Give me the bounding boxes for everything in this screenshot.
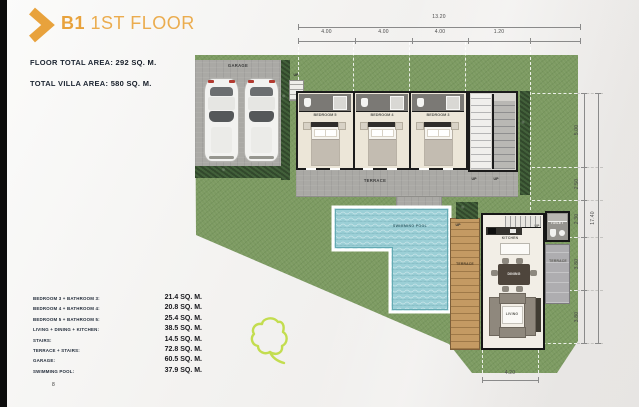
dim-tick bbox=[482, 377, 483, 383]
window bbox=[419, 168, 429, 170]
window bbox=[330, 168, 340, 170]
dim-tick bbox=[581, 290, 587, 291]
bathroom4 bbox=[356, 94, 408, 112]
legend-value: 37.9 SQ. M. bbox=[142, 367, 202, 374]
grid-line bbox=[532, 167, 577, 168]
pillow bbox=[438, 129, 450, 137]
chevron-icon bbox=[26, 7, 58, 43]
legend-label: SWIMMING POOL: bbox=[33, 369, 74, 374]
floor-area-value: 292 SQ. M. bbox=[116, 58, 157, 67]
stair-flight bbox=[471, 94, 491, 169]
up-label: UP bbox=[456, 223, 461, 227]
dining-chair bbox=[491, 270, 498, 276]
swimming-pool bbox=[325, 198, 465, 323]
right-terrace-label: TERRACE bbox=[549, 259, 567, 263]
page-number: 8 bbox=[52, 382, 55, 388]
villa-area-value: 580 SQ. M. bbox=[111, 79, 152, 88]
dim-tick bbox=[595, 343, 601, 344]
wood-deck bbox=[450, 218, 480, 350]
dim-bottom-width: 4.20 bbox=[482, 370, 538, 376]
dim-line bbox=[584, 93, 585, 343]
stairs-block bbox=[468, 91, 518, 172]
sofa bbox=[499, 327, 526, 338]
headboard bbox=[368, 122, 397, 127]
legend-value: 72.8 SQ. M. bbox=[142, 346, 202, 353]
floor-area-label: FLOOR TOTAL AREA: bbox=[30, 58, 116, 67]
legend-row: BEDROOM 5 + BATHROOM 5:25.4 SQ. M. bbox=[33, 315, 169, 325]
nightstand bbox=[451, 122, 459, 130]
legend-row: BEDROOM 4 + BATHROOM 4:20.8 SQ. M. bbox=[33, 304, 169, 314]
kitchen-sink bbox=[510, 229, 516, 233]
grid-line bbox=[409, 42, 410, 92]
car-rear-glass bbox=[250, 87, 273, 96]
up-label: UP bbox=[534, 224, 539, 228]
dim-segment: 3.80 bbox=[574, 312, 580, 323]
nightstand bbox=[303, 122, 311, 130]
area-legend: BEDROOM 3 + BATHROOM 3:21.4 SQ. M. BEDRO… bbox=[33, 294, 169, 377]
legend-row: TERRACE + STAIRS:72.8 SQ. M. bbox=[33, 346, 169, 356]
legend-row: GARAGE:60.5 SQ. M. bbox=[33, 356, 169, 366]
legend-label: GARAGE: bbox=[33, 358, 55, 363]
car-bumper bbox=[209, 156, 234, 159]
legend-value: 14.5 SQ. M. bbox=[142, 336, 202, 343]
legend-value: 21.4 SQ. M. bbox=[142, 294, 202, 301]
hedge bbox=[195, 166, 290, 178]
blanket bbox=[312, 139, 339, 165]
up-label: UP bbox=[472, 177, 477, 181]
window bbox=[363, 168, 373, 170]
brochure-page: B1 1ST FLOOR FLOOR TOTAL AREA: 292 SQ. M… bbox=[0, 0, 639, 407]
stove bbox=[488, 228, 496, 234]
living-label: LIVING bbox=[506, 312, 519, 316]
shower-fixture bbox=[390, 96, 404, 110]
right-terrace: TERRACE bbox=[545, 244, 570, 304]
dim-tick bbox=[298, 38, 299, 44]
blanket bbox=[369, 139, 396, 165]
bed bbox=[424, 122, 453, 166]
dim-segment: 2.50 bbox=[574, 179, 580, 190]
bed bbox=[311, 122, 340, 166]
page-title: B1 1ST FLOOR bbox=[61, 13, 195, 34]
coffee-table: LIVING bbox=[502, 306, 523, 324]
legend-label: TERRACE + STAIRS: bbox=[33, 348, 80, 353]
toilet-fixture bbox=[304, 98, 311, 107]
blanket bbox=[425, 139, 452, 165]
dining-chair bbox=[516, 286, 523, 292]
headboard bbox=[424, 122, 453, 127]
living-block: UP KITCHEN DINING LIVING bbox=[481, 213, 545, 350]
nightstand bbox=[395, 122, 403, 130]
bedroom5-label: BEDROOM 5 bbox=[314, 113, 337, 117]
dim-tick bbox=[412, 38, 413, 44]
floor-total-area: FLOOR TOTAL AREA: 292 SQ. M. bbox=[30, 58, 156, 67]
kitchen-label: KITCHEN bbox=[502, 236, 518, 240]
bedroom4-label: BEDROOM 4 bbox=[371, 113, 394, 117]
dim-tick bbox=[581, 237, 587, 238]
villa-area-label: TOTAL VILLA AREA: bbox=[30, 79, 111, 88]
hedge bbox=[520, 91, 530, 195]
car-windshield bbox=[249, 111, 274, 122]
title-code: B1 bbox=[61, 13, 85, 33]
dim-tick bbox=[581, 343, 587, 344]
pillow bbox=[325, 129, 337, 137]
page-edge bbox=[0, 0, 7, 407]
toilet-label: TOILET bbox=[550, 221, 563, 225]
sink-fixture bbox=[559, 230, 565, 236]
toilet-fixture bbox=[550, 229, 556, 237]
dim-tick bbox=[581, 167, 587, 168]
dim-segment: 4.00 bbox=[355, 29, 412, 35]
legend-row: SWIMMING POOL:37.9 SQ. M. bbox=[33, 367, 169, 377]
toilet-room: TOILET bbox=[545, 211, 570, 242]
shower-fixture bbox=[446, 96, 460, 110]
nightstand bbox=[338, 122, 346, 130]
legend-label: BEDROOM 3 + BATHROOM 3: bbox=[33, 296, 100, 301]
car-top-view bbox=[244, 78, 279, 162]
dim-tick bbox=[355, 38, 356, 44]
legend-value: 60.5 SQ. M. bbox=[142, 356, 202, 363]
bed bbox=[368, 122, 397, 166]
legend-value: 38.5 SQ. M. bbox=[142, 325, 202, 332]
dim-line bbox=[298, 27, 580, 28]
toilet-fixture bbox=[417, 98, 424, 107]
dim-tick bbox=[581, 93, 587, 94]
kitchen-island bbox=[500, 243, 530, 255]
dim-overall-height: 17.40 bbox=[590, 211, 596, 225]
dim-tick bbox=[468, 38, 469, 44]
dim-line bbox=[482, 380, 538, 381]
headboard bbox=[311, 122, 340, 127]
stair-flight bbox=[494, 101, 515, 169]
legend-label: BEDROOM 5 + BATHROOM 5: bbox=[33, 317, 100, 322]
legend-row: STAIRS:14.5 SQ. M. bbox=[33, 336, 169, 346]
legend-label: LIVING + DINING + KITCHEN: bbox=[33, 327, 99, 332]
dim-overall-width: 13.20 bbox=[298, 14, 580, 20]
up-label: UP bbox=[294, 73, 299, 77]
car-top-view bbox=[204, 78, 239, 162]
car-taillight bbox=[208, 80, 214, 83]
car-hood bbox=[251, 127, 272, 153]
dim-tick bbox=[595, 93, 601, 94]
legend-value: 20.8 SQ. M. bbox=[142, 304, 202, 311]
terrace-area bbox=[296, 168, 518, 197]
grid-line bbox=[465, 42, 466, 92]
legend-label: BEDROOM 4 + BATHROOM 4: bbox=[33, 306, 100, 311]
tv-cabinet bbox=[536, 298, 541, 332]
car-taillight bbox=[229, 80, 235, 83]
dim-line bbox=[298, 41, 580, 42]
swimming-pool-label: SWIMMING POOL bbox=[393, 224, 427, 228]
dim-tick bbox=[580, 38, 581, 44]
grid-line bbox=[538, 350, 539, 373]
dining-chair bbox=[530, 270, 537, 276]
garage-label: GARAGE bbox=[228, 63, 248, 68]
nightstand bbox=[416, 122, 424, 130]
dim-segment: 4.00 bbox=[298, 29, 355, 35]
dining-label: DINING bbox=[507, 272, 520, 276]
hedge bbox=[281, 60, 290, 180]
car-roof bbox=[248, 97, 275, 110]
bathroom5 bbox=[299, 94, 351, 112]
toilet-fixture bbox=[361, 98, 368, 107]
car-taillight bbox=[248, 80, 254, 83]
window bbox=[306, 168, 316, 170]
window bbox=[387, 168, 397, 170]
dim-segment: 5.00 bbox=[574, 125, 580, 136]
legend-value: 25.4 SQ. M. bbox=[142, 315, 202, 322]
sofa bbox=[499, 293, 526, 304]
dim-segment: 1.20 bbox=[468, 29, 530, 35]
terrace-label: TERRACE bbox=[364, 178, 386, 183]
dim-tick bbox=[581, 200, 587, 201]
legend-row: LIVING + DINING + KITCHEN:38.5 SQ. M. bbox=[33, 325, 169, 335]
car-rear-glass bbox=[210, 87, 233, 96]
grid-line bbox=[353, 42, 354, 92]
window bbox=[443, 168, 453, 170]
leaf-scribble-icon bbox=[248, 315, 294, 367]
dining-chair bbox=[502, 286, 509, 292]
dim-tick bbox=[580, 24, 581, 30]
bedroom-block: BEDROOM 5 BEDROOM 4 BEDROOM 3 bbox=[296, 91, 468, 170]
bedroom3-label: BEDROOM 3 bbox=[427, 113, 450, 117]
villa-total-area: TOTAL VILLA AREA: 580 SQ. M. bbox=[30, 79, 152, 88]
dim-segment: 4.00 bbox=[412, 29, 468, 35]
legend-label: STAIRS: bbox=[33, 338, 52, 343]
up-label: UP bbox=[494, 177, 499, 181]
grid-line bbox=[532, 93, 577, 94]
dim-line bbox=[598, 93, 599, 343]
car-bumper bbox=[249, 156, 274, 159]
dim-segment: 2.30 bbox=[574, 214, 580, 225]
car-windshield bbox=[209, 111, 234, 122]
bathroom3 bbox=[412, 94, 464, 112]
grid-line bbox=[532, 200, 577, 201]
shower-fixture bbox=[333, 96, 347, 110]
bedroom4-unit: BEDROOM 4 bbox=[355, 93, 409, 168]
legend-row: BEDROOM 3 + BATHROOM 3:21.4 SQ. M. bbox=[33, 294, 169, 304]
dim-segment: 3.80 bbox=[574, 259, 580, 270]
car-taillight bbox=[269, 80, 275, 83]
bedroom5-unit: BEDROOM 5 bbox=[298, 93, 352, 168]
nightstand bbox=[360, 122, 368, 130]
dim-tick bbox=[538, 377, 539, 383]
deck-terrace-label: TERRACE bbox=[456, 262, 474, 266]
dim-tick bbox=[530, 38, 531, 44]
title-text: 1ST FLOOR bbox=[85, 13, 195, 33]
car-roof bbox=[208, 97, 235, 110]
bedroom3-unit: BEDROOM 3 bbox=[411, 93, 465, 168]
grid-line bbox=[530, 42, 531, 210]
dining-table: DINING bbox=[498, 264, 530, 285]
car-hood bbox=[211, 127, 232, 153]
pillow bbox=[382, 129, 394, 137]
hedge bbox=[456, 202, 478, 219]
